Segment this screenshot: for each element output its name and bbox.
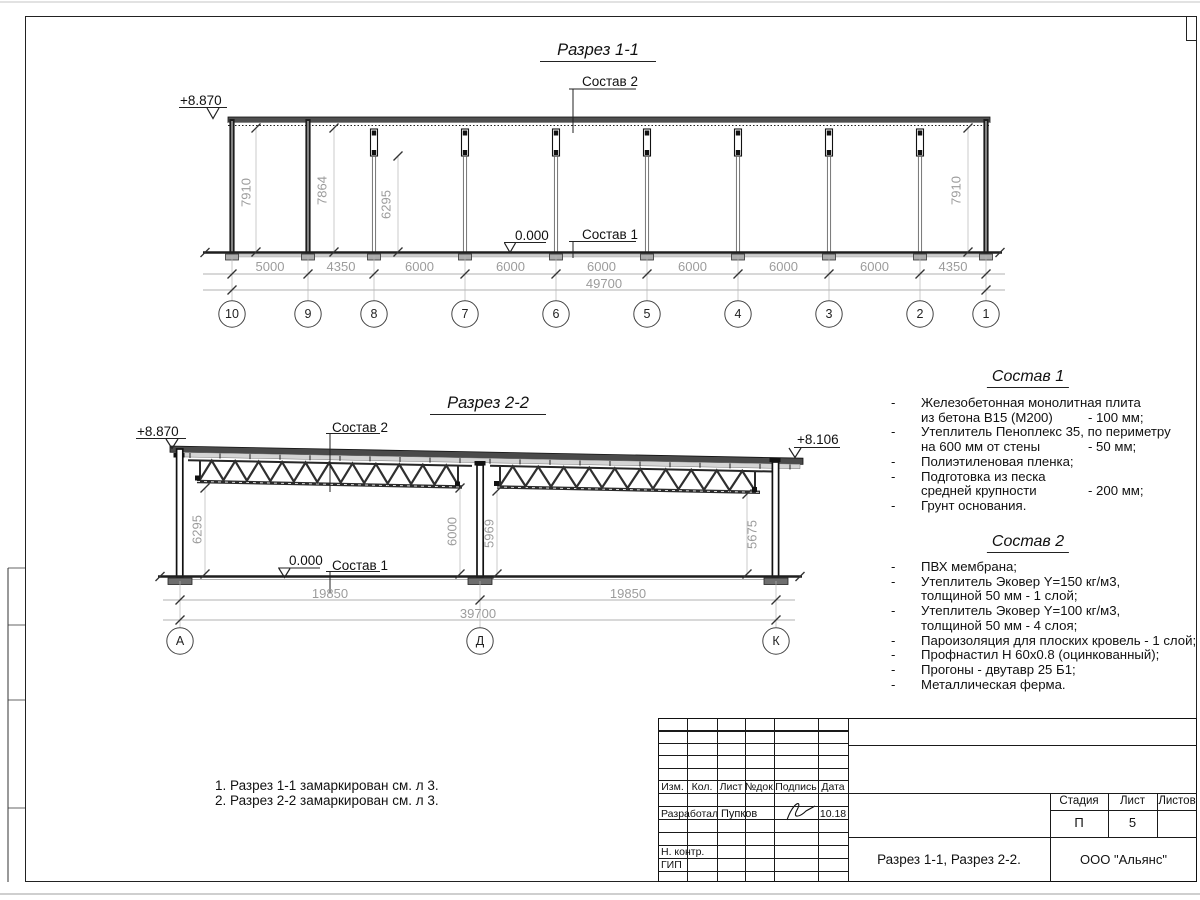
composition-line: Полиэтиленовая пленка;: [921, 455, 1178, 470]
composition-item-text: Утеплитель Эковер Y=100 кг/м3,толщиной 5…: [921, 604, 1178, 633]
section-1-1-height-dim: 7864: [315, 148, 330, 232]
section-1-1-callout-roof: Состав 2: [582, 74, 638, 89]
section-1-1-grid-bubble-label: 1: [973, 307, 1000, 321]
bullet-dash: -: [888, 396, 921, 425]
composition-line: на 600 мм от стены- 50 мм;: [921, 440, 1178, 455]
title-block-line: [658, 806, 848, 807]
section-1-1-span-dim: 6000: [749, 259, 819, 274]
section-2-2-span-dim: 19850: [295, 586, 365, 601]
composition-item-text: Металлическая ферма.: [921, 678, 1178, 693]
composition-line: Профнастил Н 60х0.8 (оцинкованный);: [921, 648, 1178, 663]
tb-gip-label: ГИП: [661, 859, 682, 871]
composition-item-text: Железобетонная монолитная плитаиз бетона…: [921, 396, 1178, 425]
section-1-1-grid-bubble-label: 5: [634, 307, 661, 321]
section-2-2-height-dim: 5675: [745, 492, 760, 576]
composition-line: Железобетонная монолитная плита: [921, 396, 1178, 411]
section-2-2-span-dim: 19850: [593, 586, 663, 601]
composition-item-text: Подготовка из пескасредней крупности- 20…: [921, 470, 1178, 499]
composition-item: -Утеплитель Эковер Y=100 кг/м3,толщиной …: [888, 604, 1178, 633]
tb-header-kol: Кол.: [687, 781, 717, 793]
composition-item-text: Утеплитель Пеноплекс 35, по периметруна …: [921, 425, 1178, 454]
sostav1-title: Состав 1: [987, 368, 1069, 388]
composition-item-text: ПВХ мембрана;: [921, 560, 1178, 575]
bullet-dash: -: [888, 470, 921, 499]
section-1-1-span-dim: 6000: [476, 259, 546, 274]
section-1-1-span-dim: 4350: [918, 259, 988, 274]
section-2-2-height-dim: 6295: [190, 487, 205, 571]
section-2-2-elevation-left: +8.870: [137, 424, 179, 439]
section-1-1-grid-bubble-label: 7: [452, 307, 479, 321]
bullet-dash: -: [888, 663, 921, 678]
section-1-1-span-dim: 6000: [567, 259, 637, 274]
tb-norm-control-label: Н. контр.: [661, 846, 704, 858]
composition-item-text: Профнастил Н 60х0.8 (оцинкованный);: [921, 648, 1178, 663]
bullet-dash: -: [888, 648, 921, 663]
section-1-1-grid-bubble-label: 8: [361, 307, 388, 321]
composition-line: Металлическая ферма.: [921, 678, 1178, 693]
composition-line: толщиной 50 мм - 4 слоя;: [921, 619, 1178, 634]
composition-line: толщиной 50 мм - 1 слой;: [921, 589, 1178, 604]
composition-item-text: Грунт основания.: [921, 499, 1178, 514]
section-1-1-grid-bubble-label: 3: [816, 307, 843, 321]
tb-sheets-label: Листов: [1157, 795, 1197, 807]
composition-item: -Утеплитель Пеноплекс 35, по периметруна…: [888, 425, 1178, 454]
composition-line: Грунт основания.: [921, 499, 1178, 514]
bullet-dash: -: [888, 678, 921, 693]
title-block-line: [658, 743, 848, 744]
bullet-dash: -: [888, 560, 921, 575]
tb-stage-label: Стадия: [1050, 795, 1108, 807]
section-2-2-height-dim: 6000: [445, 489, 460, 573]
composition-line: Прогоны - двутавр 25 Б1;: [921, 663, 1178, 678]
tb-sheet-label: Лист: [1108, 795, 1157, 807]
composition-item: -Полиэтиленовая пленка;: [888, 455, 1178, 470]
composition-line: Утеплитель Пеноплекс 35, по периметру: [921, 425, 1178, 440]
bullet-dash: -: [888, 604, 921, 633]
composition-item: -Утеплитель Эковер Y=150 кг/м3,толщиной …: [888, 575, 1178, 604]
section-1-1-total-dim: 49700: [569, 276, 639, 291]
composition-item: -Подготовка из пескасредней крупности- 2…: [888, 470, 1178, 499]
composition-thickness-value: - 100 мм;: [1088, 411, 1144, 426]
sostav2-list: -ПВХ мембрана;-Утеплитель Эковер Y=150 к…: [888, 560, 1178, 692]
section-1-1-height-dim: 7910: [949, 148, 964, 232]
section-2-2-grid-bubble-label: А: [167, 634, 194, 648]
section-1-1-grid-bubble-label: 2: [907, 307, 934, 321]
title-block-line: [658, 730, 848, 731]
section-1-1-title: Разрез 1-1: [540, 41, 656, 62]
section-2-2-elevation-right: +8.106: [797, 432, 839, 447]
section-1-1-callout-floor: Состав 1: [582, 227, 638, 242]
tb-company: ООО "Альянс": [1050, 852, 1197, 867]
section-1-1-height-dim: 7910: [239, 150, 254, 234]
section-1-1-span-dim: 6000: [658, 259, 728, 274]
title-block-line: [658, 755, 848, 756]
bullet-dash: -: [888, 575, 921, 604]
section-2-2-callout-floor: Состав 1: [332, 558, 388, 573]
section-2-2-zero-level: 0.000: [289, 553, 323, 568]
section-2-2-callout-roof: Состав 2: [332, 420, 388, 435]
section-1-1-grid-bubble-label: 10: [219, 307, 246, 321]
composition-thickness-value: - 200 мм;: [1088, 484, 1144, 499]
tb-header-podpis: Подпись: [774, 781, 818, 793]
section-2-2-height-dim: 5969: [482, 491, 497, 575]
section-2-2-grid-bubble-label: К: [763, 634, 790, 648]
composition-thickness-value: - 50 мм;: [1088, 440, 1136, 455]
tb-developer-label: Разработал: [661, 808, 718, 820]
section-2-2-total-dim: 39700: [443, 606, 513, 621]
title-block-line: [658, 858, 848, 859]
tb-header-izm: Изм.: [658, 781, 687, 793]
section-1-1-span-dim: 4350: [306, 259, 376, 274]
section-2-2-grid-bubble-label: Д: [467, 634, 494, 648]
composition-item: -Пароизоляция для плоских кровель - 1 сл…: [888, 634, 1178, 649]
bullet-dash: -: [888, 634, 921, 649]
composition-line: Подготовка из песка: [921, 470, 1178, 485]
composition-line: Утеплитель Эковер Y=150 кг/м3,: [921, 575, 1178, 590]
composition-item-text: Утеплитель Эковер Y=150 кг/м3,толщиной 5…: [921, 575, 1178, 604]
section-2-2-title: Разрез 2-2: [430, 394, 546, 415]
section-1-1-span-dim: 6000: [840, 259, 910, 274]
bullet-dash: -: [888, 499, 921, 514]
composition-item-text: Прогоны - двутавр 25 Б1;: [921, 663, 1178, 678]
section-1-1-elevation: +8.870: [180, 93, 222, 108]
section-1-1-span-dim: 5000: [235, 259, 305, 274]
composition-line: средней крупности- 200 мм;: [921, 484, 1178, 499]
tb-date: 10.18: [818, 808, 848, 820]
bullet-dash: -: [888, 425, 921, 454]
composition-item: -Профнастил Н 60х0.8 (оцинкованный);: [888, 648, 1178, 663]
title-block-line: [658, 793, 848, 794]
notes: 1. Разрез 1-1 замаркирован см. л 3.2. Ра…: [215, 779, 439, 808]
bullet-dash: -: [888, 455, 921, 470]
composition-line: ПВХ мембрана;: [921, 560, 1178, 575]
tb-header-ndok: №док.: [745, 781, 774, 793]
section-1-1-grid-bubble-label: 6: [543, 307, 570, 321]
composition-line: Пароизоляция для плоских кровель - 1 сло…: [921, 634, 1196, 649]
note-line: 1. Разрез 1-1 замаркирован см. л 3.: [215, 779, 439, 794]
title-block-line: [1050, 810, 1197, 811]
section-1-1-grid-bubble-label: 4: [725, 307, 752, 321]
tb-stage-value: П: [1050, 815, 1108, 830]
title-block-line: [658, 832, 848, 833]
section-1-1-span-dim: 6000: [385, 259, 455, 274]
title-block-line: [658, 768, 848, 769]
sostav2-title: Состав 2: [987, 533, 1069, 553]
composition-item: -Железобетонная монолитная плитаиз бетон…: [888, 396, 1178, 425]
title-block-line: [658, 871, 848, 872]
composition-item-text: Пароизоляция для плоских кровель - 1 сло…: [921, 634, 1196, 649]
tb-developer-name: Пупков: [721, 808, 757, 820]
composition-item: -Металлическая ферма.: [888, 678, 1178, 693]
sostav1-list: -Железобетонная монолитная плитаиз бетон…: [888, 396, 1178, 514]
section-1-1-height-dim: 6295: [379, 162, 394, 246]
tb-header-data: Дата: [818, 781, 848, 793]
title-block-line: [848, 837, 1197, 838]
drawing-sheet: Разрез 1-1 Состав 2 +8.870 0.000 Состав …: [0, 0, 1200, 900]
tb-doc-title: Разрез 1-1, Разрез 2-2.: [848, 852, 1050, 867]
frame-corner-box: [1186, 16, 1197, 41]
composition-line: Утеплитель Эковер Y=100 кг/м3,: [921, 604, 1178, 619]
section-1-1-zero-level: 0.000: [515, 228, 549, 243]
composition-item: -ПВХ мембрана;: [888, 560, 1178, 575]
tb-sheet-value: 5: [1108, 815, 1157, 830]
composition-item: -Грунт основания.: [888, 499, 1178, 514]
note-line: 2. Разрез 2-2 замаркирован см. л 3.: [215, 794, 439, 809]
composition-item-text: Полиэтиленовая пленка;: [921, 455, 1178, 470]
title-block-line: [848, 745, 1197, 746]
section-1-1-grid-bubble-label: 9: [295, 307, 322, 321]
title-block-line: [848, 793, 1197, 794]
composition-item: -Прогоны - двутавр 25 Б1;: [888, 663, 1178, 678]
tb-header-list: Лист: [717, 781, 745, 793]
composition-line: из бетона В15 (М200)- 100 мм;: [921, 411, 1178, 426]
